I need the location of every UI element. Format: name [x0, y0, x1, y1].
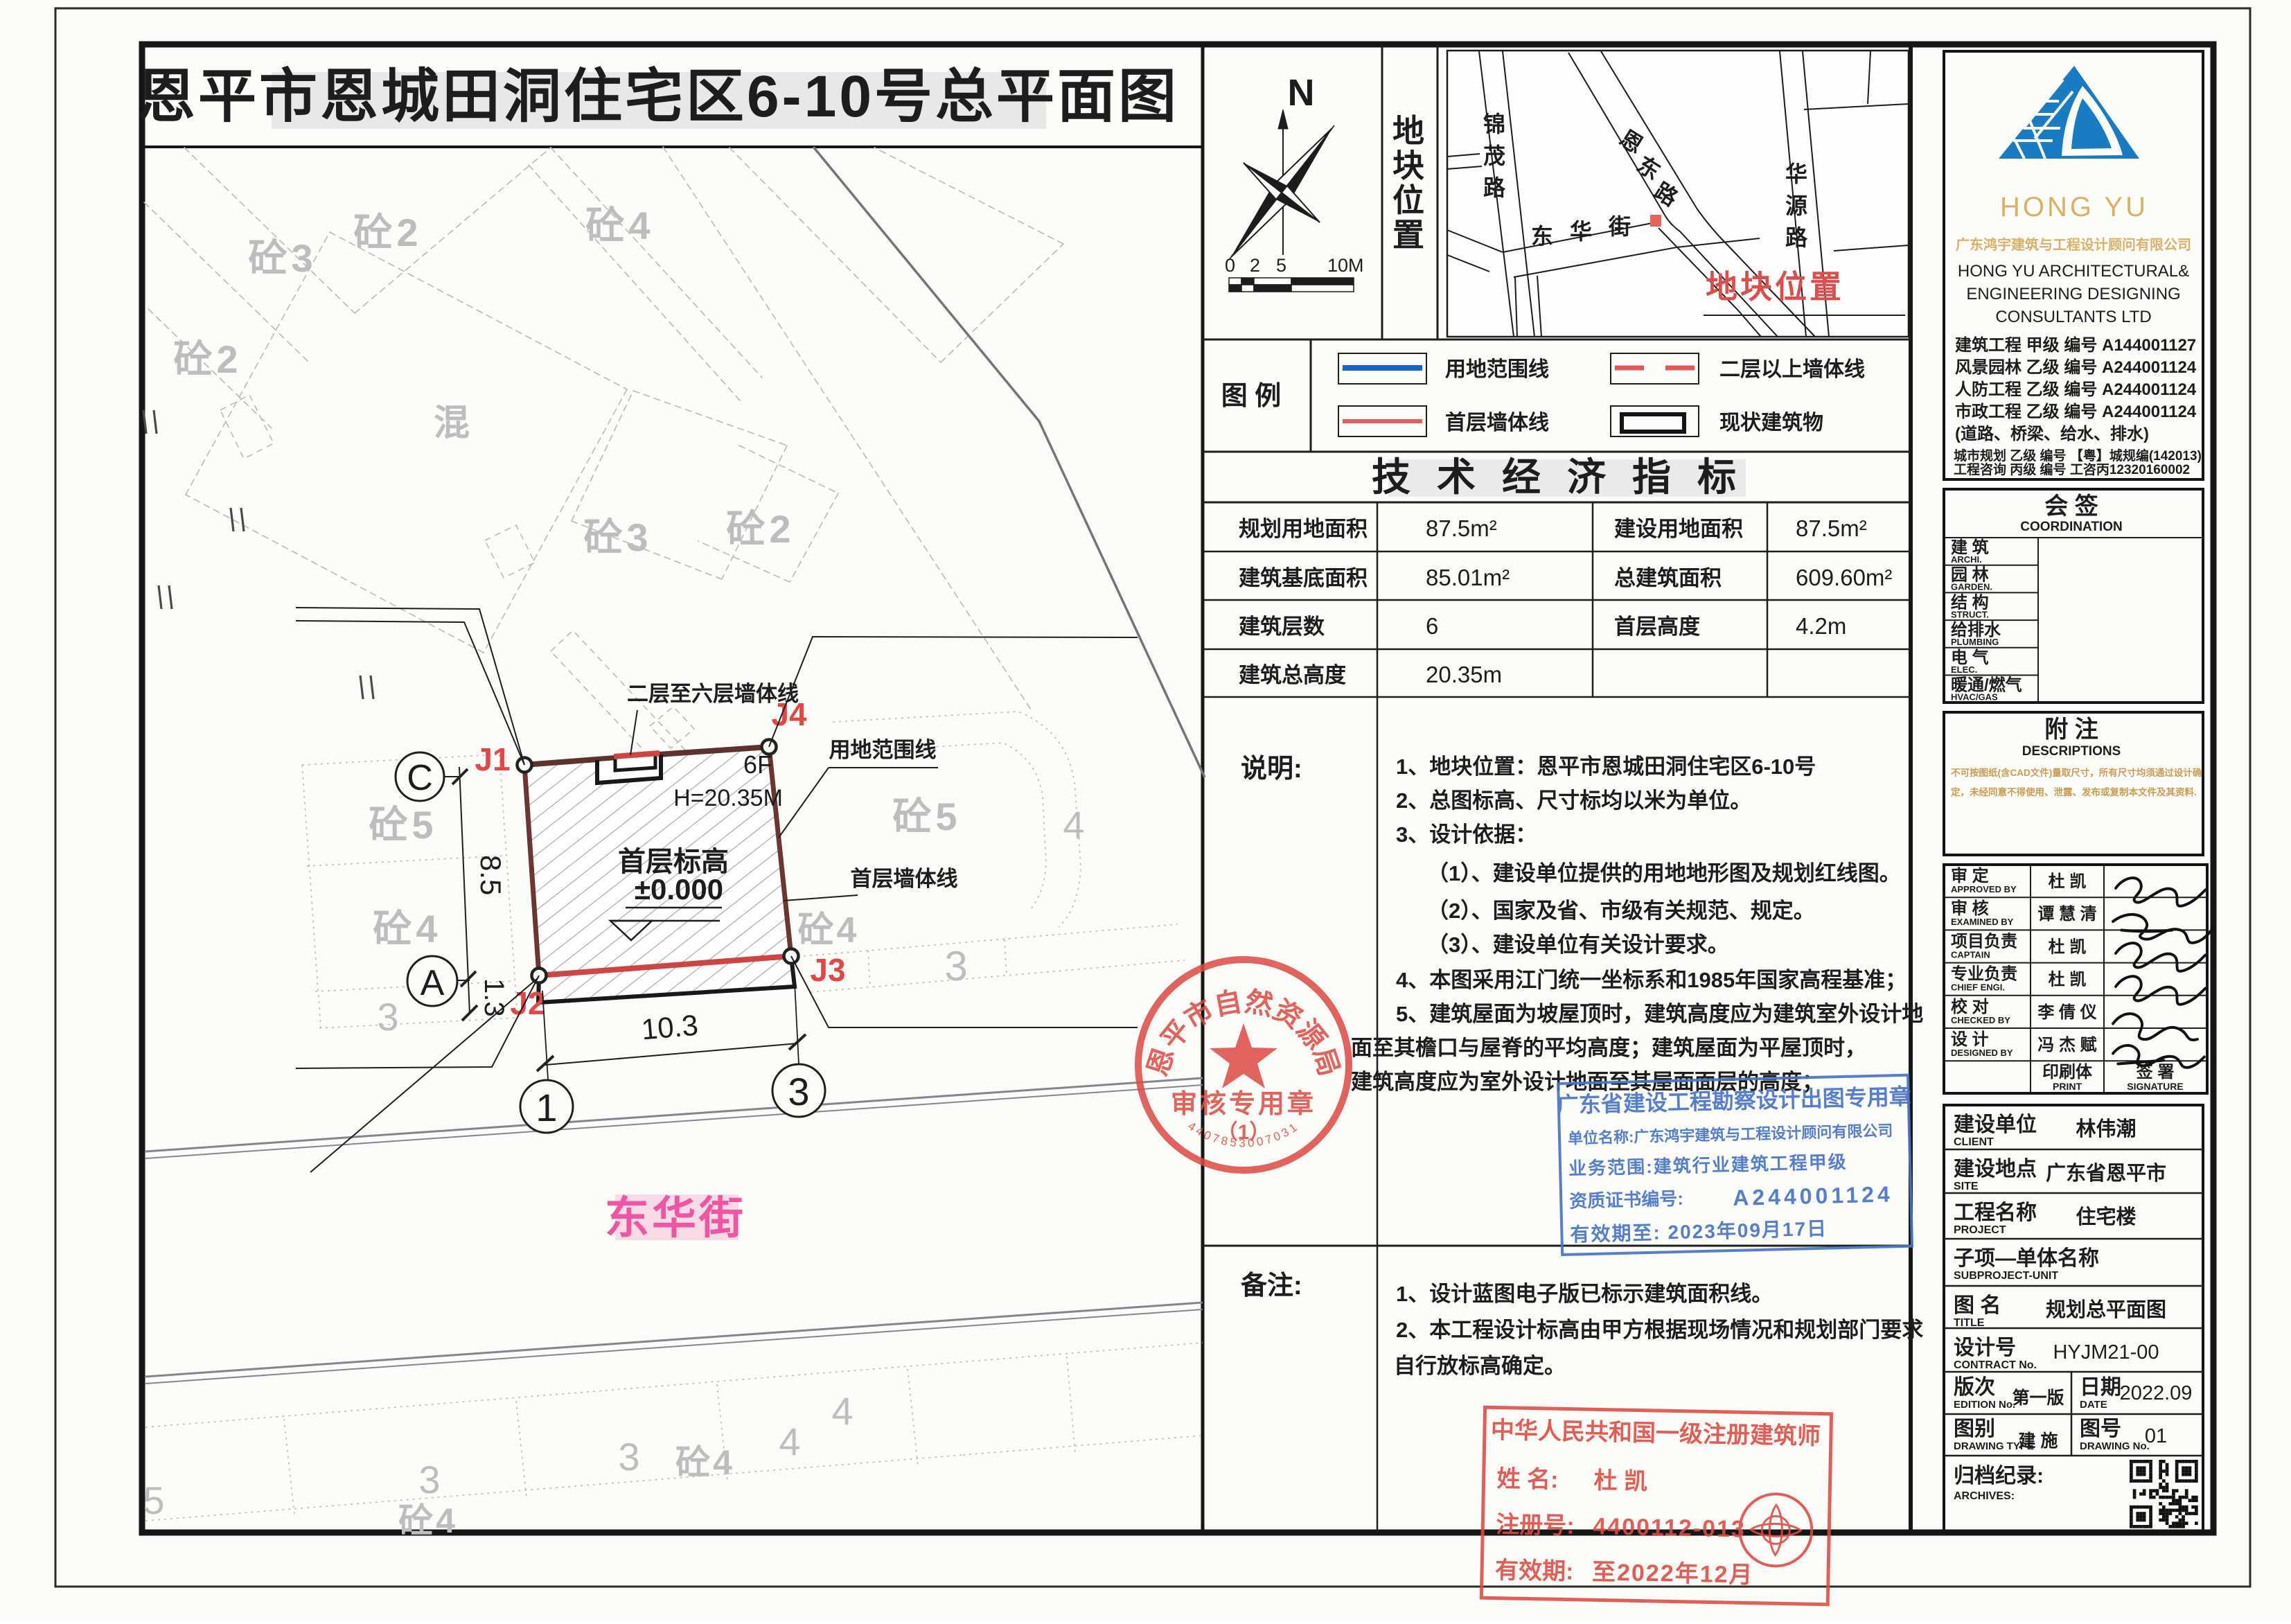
svg-text:冯 杰 赋: 冯 杰 赋 [2037, 1036, 2096, 1054]
svg-text:用地范围线: 用地范围线 [829, 738, 937, 762]
svg-text:首层高度: 首层高度 [1614, 615, 1700, 639]
svg-text:建筑层数: 建筑层数 [1239, 615, 1325, 639]
svg-text:建筑总高度: 建筑总高度 [1239, 663, 1346, 687]
svg-text:C: C [407, 758, 433, 798]
svg-text:路: 路 [1785, 225, 1808, 250]
svg-text:4400112-013: 4400112-013 [1593, 1513, 1746, 1542]
svg-text:审 核: 审 核 [1951, 899, 1989, 918]
svg-text:1.3: 1.3 [479, 978, 509, 1017]
svg-text:2: 2 [1250, 255, 1260, 276]
svg-text:杜 凯: 杜 凯 [2049, 937, 2087, 956]
svg-text:茂: 茂 [1483, 143, 1505, 168]
svg-text:SIGNATURE: SIGNATURE [2127, 1081, 2183, 1092]
svg-text:1: 1 [536, 1086, 557, 1129]
svg-text:CLIENT: CLIENT [1954, 1136, 1994, 1148]
svg-text:谭 慧 清: 谭 慧 清 [2037, 905, 2096, 924]
svg-text:砼5: 砼5 [369, 803, 437, 847]
svg-text:DRAWING No.: DRAWING No. [2080, 1440, 2150, 1452]
svg-text:技术经济指标: 技术经济指标 [1372, 455, 1762, 499]
svg-text:砼3: 砼3 [583, 515, 652, 559]
svg-text:4.2m: 4.2m [1796, 613, 1846, 639]
svg-text:0: 0 [1225, 255, 1235, 276]
svg-text:HONG YU: HONG YU [2000, 192, 2148, 222]
svg-text:COORDINATION: COORDINATION [2020, 520, 2122, 534]
svg-text:至2022年12月: 至2022年12月 [1592, 1559, 1754, 1588]
svg-text:HVAC/GAS: HVAC/GAS [1951, 692, 1998, 703]
svg-text:城市规划 乙级 编号 【粤】城规编(142013): 城市规划 乙级 编号 【粤】城规编(142013) [1954, 448, 2202, 464]
svg-text:J3: J3 [810, 952, 845, 988]
svg-text:10.3: 10.3 [640, 1009, 700, 1046]
svg-text:2、本工程设计标高由甲方根据现场情况和规划部门要求: 2、本工程设计标高由甲方根据现场情况和规划部门要求 [1396, 1318, 1923, 1342]
svg-text:EXAMINED BY: EXAMINED BY [1951, 917, 2014, 927]
svg-text:4: 4 [831, 1389, 853, 1433]
svg-text:DESCRIPTIONS: DESCRIPTIONS [2022, 744, 2121, 759]
svg-text:5、建筑屋面为坡屋顶时，建筑高度应为建筑室外设计地: 5、建筑屋面为坡屋顶时，建筑高度应为建筑室外设计地 [1396, 1002, 1923, 1026]
svg-text:规划用地面积: 规划用地面积 [1239, 517, 1368, 541]
svg-text:广东省恩平市: 广东省恩平市 [2046, 1161, 2166, 1185]
svg-text:(道路、桥梁、给水、排水): (道路、桥梁、给水、排水) [1955, 424, 2149, 443]
svg-text:TITLE: TITLE [1954, 1317, 1985, 1329]
svg-text:归档纪录:: 归档纪录: [1954, 1465, 2044, 1488]
svg-text:二层至六层墙体线: 二层至六层墙体线 [627, 682, 799, 706]
svg-text:CONTRACT No.: CONTRACT No. [1954, 1359, 2037, 1371]
svg-text:±0.000: ±0.000 [635, 873, 723, 906]
svg-text:建设用地面积: 建设用地面积 [1614, 517, 1743, 541]
svg-text:图号: 图号 [2080, 1418, 2121, 1440]
svg-text:建筑工程 甲级 编号 A144001127: 建筑工程 甲级 编号 A144001127 [1955, 335, 2196, 355]
svg-text:N: N [1288, 72, 1315, 114]
svg-text:图别: 图别 [1954, 1418, 1995, 1440]
svg-text:东华街: 东华街 [605, 1193, 746, 1243]
svg-text:GARDEN.: GARDEN. [1951, 582, 1992, 592]
svg-text:（3）、建设单位有关设计要求。: （3）、建设单位有关设计要求。 [1427, 933, 1729, 957]
svg-text:85.01m²: 85.01m² [1426, 565, 1510, 590]
svg-text:杜 凯: 杜 凯 [2049, 872, 2087, 891]
svg-text:林伟潮: 林伟潮 [2076, 1118, 2136, 1140]
svg-text:子项—单体名称: 子项—单体名称 [1954, 1247, 2099, 1270]
svg-text:版次: 版次 [1954, 1376, 1995, 1399]
svg-text:资质证书编号:: 资质证书编号: [1569, 1188, 1683, 1212]
svg-text:风景园林 乙级 编号 A244001124: 风景园林 乙级 编号 A244001124 [1955, 358, 2197, 377]
svg-text:3、设计依据：: 3、设计依据： [1396, 822, 1537, 847]
svg-text:广东鸿宇建筑与工程设计顾问有限公司: 广东鸿宇建筑与工程设计顾问有限公司 [1956, 236, 2191, 253]
svg-text:砼4: 砼4 [398, 1501, 458, 1540]
svg-text:总建筑面积: 总建筑面积 [1614, 566, 1722, 590]
svg-text:二层以上墙体线: 二层以上墙体线 [1719, 358, 1865, 381]
svg-text:4、本图采用江门统一坐标系和1985年国家高程基准；: 4、本图采用江门统一坐标系和1985年国家高程基准； [1396, 968, 1907, 992]
svg-text:1、地块位置：恩平市恩城田洞住宅区6-10号: 1、地块位置：恩平市恩城田洞住宅区6-10号 [1396, 754, 1816, 779]
svg-text:CHECKED BY: CHECKED BY [1951, 1015, 2010, 1025]
svg-text:609.60m²: 609.60m² [1796, 565, 1892, 590]
svg-text:工程名称: 工程名称 [1954, 1201, 2037, 1224]
svg-text:砼4: 砼4 [798, 910, 860, 951]
svg-text:HONG YU ARCHITECTURAL&: HONG YU ARCHITECTURAL& [1958, 262, 2189, 281]
svg-text:建设地点: 建设地点 [1954, 1158, 2037, 1181]
svg-text:姓 名:: 姓 名: [1496, 1466, 1558, 1494]
svg-text:注册号:: 注册号: [1496, 1512, 1575, 1539]
svg-text:会 签: 会 签 [2044, 493, 2098, 520]
svg-text:1、设计蓝图电子版已标示建筑面积线。: 1、设计蓝图电子版已标示建筑面积线。 [1396, 1282, 1773, 1306]
svg-text:住宅楼: 住宅楼 [2076, 1205, 2136, 1228]
svg-text:街: 街 [1608, 214, 1631, 239]
svg-text:4: 4 [1063, 803, 1084, 847]
svg-text:东: 东 [1531, 224, 1553, 249]
svg-text:说明:: 说明: [1241, 754, 1302, 784]
svg-text:砼4: 砼4 [675, 1443, 735, 1482]
svg-text:87.5m²: 87.5m² [1426, 515, 1497, 541]
svg-text:首层墙体线: 首层墙体线 [1445, 412, 1549, 434]
svg-text:砼5: 砼5 [892, 795, 961, 838]
svg-text:CAPTAIN: CAPTAIN [1951, 949, 1990, 960]
svg-text:6: 6 [1426, 613, 1438, 639]
svg-text:ARCHIVES:: ARCHIVES: [1954, 1490, 2015, 1502]
svg-text:不可按图纸(含CAD文件)量取尺寸，所有尺寸均须通过设计确: 不可按图纸(含CAD文件)量取尺寸，所有尺寸均须通过设计确 [1951, 767, 2202, 778]
svg-text:有效期:: 有效期: [1495, 1557, 1574, 1585]
svg-text:杜 凯: 杜 凯 [1593, 1467, 1647, 1494]
svg-text:CHIEF ENGI.: CHIEF ENGI. [1951, 982, 2005, 993]
svg-text:混: 混 [434, 403, 474, 443]
svg-text:3: 3 [418, 1458, 440, 1501]
svg-text:现状建筑物: 现状建筑物 [1719, 411, 1823, 434]
svg-text:华: 华 [1785, 161, 1807, 186]
svg-text:面至其檐口与屋脊的平均高度；建筑屋面为平屋顶时，: 面至其檐口与屋脊的平均高度；建筑屋面为平屋顶时， [1351, 1036, 1866, 1060]
svg-text:PLUMBING: PLUMBING [1951, 637, 1999, 647]
svg-text:华: 华 [1570, 219, 1592, 244]
svg-text:（1）、建设单位提供的用地地形图及规划红线图。: （1）、建设单位提供的用地地形图及规划红线图。 [1427, 861, 1901, 885]
svg-text:EDITION No.: EDITION No. [1954, 1399, 2015, 1411]
svg-text:A244001124: A244001124 [1733, 1181, 1893, 1210]
svg-text:砼2: 砼2 [353, 211, 422, 254]
svg-text:规划总平面图: 规划总平面图 [2046, 1298, 2166, 1321]
svg-text:3: 3 [944, 943, 967, 989]
svg-text:第一版: 第一版 [2012, 1388, 2064, 1408]
svg-text:砼2: 砼2 [173, 337, 242, 381]
svg-text:6F: 6F [743, 750, 772, 779]
svg-text:20.35m: 20.35m [1426, 662, 1502, 687]
svg-text:10M: 10M [1327, 255, 1364, 276]
svg-text:印刷体: 印刷体 [2042, 1063, 2093, 1082]
svg-text:4: 4 [779, 1420, 800, 1463]
svg-text:用地范围线: 用地范围线 [1445, 358, 1549, 381]
svg-text:人防工程 乙级 编号 A244001124: 人防工程 乙级 编号 A244001124 [1955, 380, 2197, 399]
svg-text:图 名: 图 名 [1954, 1294, 2001, 1317]
svg-text:ELEC.: ELEC. [1951, 664, 1977, 675]
svg-text:置: 置 [1392, 217, 1424, 253]
svg-text:STRUCT.: STRUCT. [1951, 609, 1989, 619]
svg-text:SITE: SITE [1954, 1181, 1979, 1192]
svg-text:块: 块 [1392, 148, 1424, 184]
svg-text:H=20.35M: H=20.35M [673, 785, 783, 811]
svg-text:PRINT: PRINT [2053, 1081, 2082, 1092]
svg-text:设计号: 设计号 [1954, 1336, 2016, 1359]
svg-text:3: 3 [377, 995, 398, 1039]
svg-text:定，未经同意不得使用、泄露、发布或复制本文件及其资料.: 定，未经同意不得使用、泄露、发布或复制本文件及其资料. [1951, 786, 2197, 797]
svg-text:8.5: 8.5 [475, 855, 507, 895]
svg-text:李 倩 仪: 李 倩 仪 [2037, 1003, 2097, 1022]
svg-text:图 例: 图 例 [1221, 382, 1282, 411]
svg-text:设 计: 设 计 [1951, 1030, 1989, 1049]
svg-text:砼4: 砼4 [373, 907, 441, 951]
svg-text:建 施: 建 施 [2019, 1431, 2058, 1451]
svg-text:工程咨询 丙级 编号 工咨丙12320160002: 工程咨询 丙级 编号 工咨丙12320160002 [1954, 461, 2190, 477]
svg-text:5: 5 [143, 1479, 164, 1522]
svg-text:地块位置: 地块位置 [1706, 269, 1844, 305]
svg-text:DESIGNED BY: DESIGNED BY [1951, 1048, 2013, 1058]
svg-text:首层墙体线: 首层墙体线 [851, 867, 958, 891]
svg-text:PROJECT: PROJECT [1954, 1224, 2006, 1236]
svg-text:附 注: 附 注 [2044, 716, 2098, 743]
svg-text:审核专用章: 审核专用章 [1171, 1089, 1316, 1119]
svg-text:砼2: 砼2 [726, 507, 795, 551]
svg-text:位: 位 [1392, 182, 1424, 218]
svg-text:87.5m²: 87.5m² [1796, 515, 1867, 541]
svg-text:市政工程 乙级 编号 A244001124: 市政工程 乙级 编号 A244001124 [1955, 402, 2197, 421]
svg-text:源: 源 [1785, 193, 1807, 218]
svg-text:2、总图标高、尺寸标均以米为单位。: 2、总图标高、尺寸标均以米为单位。 [1396, 788, 1751, 813]
svg-text:建筑基底面积: 建筑基底面积 [1239, 566, 1368, 590]
svg-text:ENGINEERING DESIGNING: ENGINEERING DESIGNING [1966, 285, 2180, 303]
svg-text:砼3: 砼3 [248, 236, 317, 280]
svg-text:备注:: 备注: [1241, 1271, 1302, 1300]
svg-text:地: 地 [1392, 113, 1424, 149]
svg-text:恩平市恩城田洞住宅区6-10号总平面图: 恩平市恩城田洞住宅区6-10号总平面图 [137, 64, 1179, 129]
svg-text:路: 路 [1483, 175, 1506, 200]
svg-text:DATE: DATE [2080, 1399, 2107, 1411]
svg-text:锦: 锦 [1483, 112, 1505, 136]
svg-text:砼4: 砼4 [585, 204, 654, 247]
svg-text:审 定: 审 定 [1951, 866, 1989, 885]
svg-text:日期: 日期 [2080, 1376, 2121, 1399]
svg-text:SUBPROJECT-UNIT: SUBPROJECT-UNIT [1954, 1270, 2058, 1282]
svg-text:J2: J2 [510, 985, 545, 1021]
svg-text:2022.09: 2022.09 [2120, 1382, 2193, 1404]
svg-text:ARCHI.: ARCHI. [1951, 554, 1982, 565]
svg-text:专业负责: 专业负责 [1951, 964, 2017, 984]
svg-text:3: 3 [788, 1070, 809, 1113]
svg-text:J1: J1 [475, 741, 510, 777]
svg-text:杜 凯: 杜 凯 [2049, 971, 2087, 989]
svg-text:01: 01 [2145, 1425, 2167, 1447]
svg-text:校 对: 校 对 [1951, 997, 1989, 1016]
svg-text:HYJM21-00: HYJM21-00 [2053, 1341, 2159, 1363]
svg-text:（2）、国家及省、市级有关规范、规定。: （2）、国家及省、市级有关规范、规定。 [1427, 899, 1815, 923]
svg-text:5: 5 [1276, 255, 1286, 276]
svg-text:项目负责: 项目负责 [1951, 932, 2017, 951]
svg-text:自行放标高确定。: 自行放标高确定。 [1394, 1354, 1566, 1378]
svg-text:A: A [421, 963, 445, 1003]
svg-text:建设单位: 建设单位 [1954, 1113, 2037, 1136]
svg-text:CONSULTANTS LTD: CONSULTANTS LTD [1995, 308, 2151, 326]
svg-text:APPROVED BY: APPROVED BY [1951, 884, 2017, 894]
svg-text:3: 3 [618, 1435, 639, 1479]
